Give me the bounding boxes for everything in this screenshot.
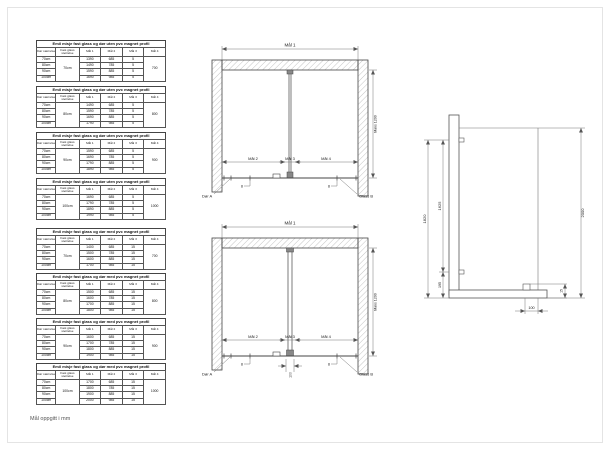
mal3-cell: 5 xyxy=(122,213,144,219)
column-header: Mål 1 xyxy=(79,48,101,57)
mal4-cell: 700 xyxy=(144,57,166,81)
column-header: Dør størrelse xyxy=(37,48,56,57)
column-header: Mål 2 xyxy=(101,326,123,335)
column-header: Dør størrelse xyxy=(37,281,56,290)
hinge-mark: 8 xyxy=(328,363,330,367)
mal1-cell: 1900 xyxy=(79,353,101,359)
column-header: Mål 2 xyxy=(101,186,123,195)
dim-195: 195 xyxy=(438,282,442,288)
dim-mal-4: Mål 4 xyxy=(321,156,332,161)
column-header: Dør størrelse xyxy=(37,140,56,149)
dimension-table: Emil misje fast glass og dør med pvc mag… xyxy=(36,363,166,405)
table-title: Emil misje fast glass og dør uten pvc ma… xyxy=(36,86,166,93)
size-table: Dør størrelseFast glass størrelseMål 1Må… xyxy=(36,280,166,315)
mal1-cell: 1800 xyxy=(79,308,101,314)
mal4-cell: 800 xyxy=(144,103,166,127)
column-header: Mål 4 xyxy=(144,236,166,245)
hinge-mark: 8 xyxy=(241,185,243,189)
dim-mal-3: Mål 3 xyxy=(285,156,296,161)
dimension-table: Emil misje fast glass og dør uten pvc ma… xyxy=(36,178,166,220)
column-header: Mål 1 xyxy=(79,281,101,290)
mal2-cell: 985 xyxy=(101,263,123,269)
column-header: Mål 2 xyxy=(101,140,123,149)
mal2-cell: 985 xyxy=(101,213,123,219)
column-header: Fast glass størrelse xyxy=(56,48,79,57)
glass-size-cell: 70cm xyxy=(56,57,79,81)
mal3-cell: 15 xyxy=(122,353,144,359)
column-header: Fast glass størrelse xyxy=(56,94,79,103)
dim-mal-2: Mål 2 xyxy=(248,334,259,339)
dim-1820: 1820 xyxy=(422,214,427,224)
glass-and-door xyxy=(222,70,358,181)
dim-center-width: 100 xyxy=(289,372,293,378)
column-header: Dør størrelse xyxy=(37,186,56,195)
mal3-cell: 15 xyxy=(122,263,144,269)
column-header: Mål 3 xyxy=(122,371,144,380)
column-header: Mål 3 xyxy=(122,186,144,195)
column-header: Mål 4 xyxy=(144,48,166,57)
drawing-sheet: Emil misje fast glass og dør uten pvc ma… xyxy=(0,0,610,450)
column-header: Mål 1 xyxy=(79,94,101,103)
column-header: Mål 2 xyxy=(101,281,123,290)
table-title: Emil misje fast glass og dør med pvc mag… xyxy=(36,273,166,280)
mal2-cell: 985 xyxy=(101,398,123,404)
column-header: Mål 1 xyxy=(79,326,101,335)
mal1-cell: 1890 xyxy=(79,167,101,173)
column-header: Mål 3 xyxy=(122,94,144,103)
glass-b-label: Glass B xyxy=(359,372,373,377)
dim-2000: 2000 xyxy=(580,208,585,218)
column-header: Mål 4 xyxy=(144,186,166,195)
column-header: Mål 3 xyxy=(122,140,144,149)
column-header: Fast glass størrelse xyxy=(56,140,79,149)
door-size-cell: 100cm xyxy=(37,121,56,127)
column-header: Mål 2 xyxy=(101,94,123,103)
dim-mal-4: Mål 4 xyxy=(321,334,332,339)
mal2-cell: 985 xyxy=(101,353,123,359)
column-header: Mål 3 xyxy=(122,236,144,245)
door-size-cell: 100cm xyxy=(37,167,56,173)
dim-1625: 1625 xyxy=(437,201,442,211)
dim-15: 15 xyxy=(560,289,564,293)
column-header: Dør størrelse xyxy=(37,326,56,335)
door-a-label: Dør A xyxy=(202,372,213,377)
mal1-cell: 1790 xyxy=(79,121,101,127)
column-header: Mål 1 xyxy=(79,371,101,380)
column-header: Mål 1 xyxy=(79,236,101,245)
mal2-cell: 985 xyxy=(101,121,123,127)
column-header: Mål 4 xyxy=(144,94,166,103)
mal4-cell: 800 xyxy=(144,290,166,314)
glass-size-cell: 80cm xyxy=(56,103,79,127)
glass-size-cell: 100cm xyxy=(56,380,79,404)
column-header: Dør størrelse xyxy=(37,371,56,380)
structure xyxy=(449,115,547,298)
dim-100: 100 xyxy=(528,306,534,310)
glass-size-cell: 70cm xyxy=(56,245,79,269)
size-table: Dør størrelseFast glass størrelseMål 1Må… xyxy=(36,139,166,174)
glass-size-cell: 100cm xyxy=(56,195,79,219)
column-header: Mål 2 xyxy=(101,236,123,245)
glass-size-cell: 90cm xyxy=(56,335,79,359)
glass-and-door xyxy=(222,248,358,359)
dimension-table: Emil misje fast glass og dør uten pvc ma… xyxy=(36,86,166,128)
dimensions xyxy=(424,128,585,314)
column-header: Fast glass størrelse xyxy=(56,326,79,335)
mal1-cell: 1690 xyxy=(79,75,101,81)
size-table: Dør størrelseFast glass størrelseMål 1Må… xyxy=(36,47,166,82)
glass-size-cell: 90cm xyxy=(56,149,79,173)
door-size-cell: 100cm xyxy=(37,213,56,219)
hinge-mark: 8 xyxy=(241,363,243,367)
door-a-label: Dør A xyxy=(202,194,213,199)
units-note: Mål oppgitt i mm xyxy=(30,416,70,422)
column-header: Mål 2 xyxy=(101,48,123,57)
door-size-cell: 100cm xyxy=(37,398,56,404)
table-title: Emil misje fast glass og dør uten pvc ma… xyxy=(36,40,166,47)
column-header: Mål 4 xyxy=(144,140,166,149)
mal1-cell: 1990 xyxy=(79,213,101,219)
column-header: Fast glass størrelse xyxy=(56,281,79,290)
mal3-cell: 5 xyxy=(122,75,144,81)
dim-mal-1: Mål 1 xyxy=(284,42,296,48)
mal4-cell: 900 xyxy=(144,149,166,173)
dim-mal-3: Mål 3 xyxy=(285,334,296,339)
column-header: Mål 1 xyxy=(79,186,101,195)
column-header: Mål 4 xyxy=(144,326,166,335)
mal4-cell: 700 xyxy=(144,245,166,269)
mal3-cell: 15 xyxy=(122,398,144,404)
door-size-cell: 100cm xyxy=(37,308,56,314)
dim-maks-1200: Maks 1200 xyxy=(374,115,378,133)
mal3-cell: 15 xyxy=(122,308,144,314)
mal2-cell: 985 xyxy=(101,167,123,173)
mal3-cell: 5 xyxy=(122,121,144,127)
size-table: Dør størrelseFast glass størrelseMål 1Må… xyxy=(36,235,166,270)
column-header: Fast glass størrelse xyxy=(56,371,79,380)
dimension-table: Emil misje fast glass og dør med pvc mag… xyxy=(36,318,166,360)
dimension-table: Emil misje fast glass og dør med pvc mag… xyxy=(36,228,166,270)
column-header: Mål 4 xyxy=(144,371,166,380)
door-size-cell: 100cm xyxy=(37,75,56,81)
column-header: Dør størrelse xyxy=(37,94,56,103)
mal4-cell: 1000 xyxy=(144,380,166,404)
dimension-table: Emil misje fast glass og dør uten pvc ma… xyxy=(36,132,166,174)
column-header: Mål 3 xyxy=(122,326,144,335)
column-header: Mål 2 xyxy=(101,371,123,380)
table-title: Emil misje fast glass og dør uten pvc ma… xyxy=(36,178,166,185)
mal1-cell: 1700 xyxy=(79,263,101,269)
table-title: Emil misje fast glass og dør med pvc mag… xyxy=(36,363,166,370)
mal4-cell: 1000 xyxy=(144,195,166,219)
mal1-cell: 2000 xyxy=(79,398,101,404)
table-title: Emil misje fast glass og dør med pvc mag… xyxy=(36,228,166,235)
size-table: Dør størrelseFast glass størrelseMål 1Må… xyxy=(36,93,166,128)
hinge-mark: 8 xyxy=(328,185,330,189)
column-header: Mål 4 xyxy=(144,281,166,290)
size-table: Dør størrelseFast glass størrelseMål 1Må… xyxy=(36,185,166,220)
glass-b-label: Glass B xyxy=(359,194,373,199)
table-title: Emil misje fast glass og dør uten pvc ma… xyxy=(36,132,166,139)
column-header: Fast glass størrelse xyxy=(56,236,79,245)
door-size-cell: 100cm xyxy=(37,263,56,269)
plan-view-bottom: Mål 1 Maks 1200 Mål 2 Mål 3 Mål 4 100 8 … xyxy=(200,214,380,384)
tables-column: Emil misje fast glass og dør uten pvc ma… xyxy=(36,0,166,450)
dim-mal-2: Mål 2 xyxy=(248,156,259,161)
mal3-cell: 5 xyxy=(122,167,144,173)
dim-mal-1: Mål 1 xyxy=(284,220,296,226)
size-table: Dør størrelseFast glass størrelseMål 1Må… xyxy=(36,325,166,360)
column-header: Mål 3 xyxy=(122,48,144,57)
dimension-table: Emil misje fast glass og dør uten pvc ma… xyxy=(36,40,166,82)
column-header: Mål 1 xyxy=(79,140,101,149)
size-table: Dør størrelseFast glass størrelseMål 1Må… xyxy=(36,370,166,405)
column-header: Dør størrelse xyxy=(37,236,56,245)
column-header: Fast glass størrelse xyxy=(56,186,79,195)
side-view: 1820 1625 195 2000 100 15 xyxy=(415,98,600,330)
mal2-cell: 985 xyxy=(101,75,123,81)
dimension-table: Emil misje fast glass og dør med pvc mag… xyxy=(36,273,166,315)
door-size-cell: 100cm xyxy=(37,353,56,359)
dim-maks-1200: Maks 1200 xyxy=(374,293,378,311)
table-title: Emil misje fast glass og dør med pvc mag… xyxy=(36,318,166,325)
column-header: Mål 3 xyxy=(122,281,144,290)
mal4-cell: 900 xyxy=(144,335,166,359)
mal2-cell: 985 xyxy=(101,308,123,314)
plan-view-top: Mål 1 Maks 1200 Mål 2 Mål 3 Mål 4 8 8 Dø… xyxy=(200,36,380,206)
glass-size-cell: 80cm xyxy=(56,290,79,314)
